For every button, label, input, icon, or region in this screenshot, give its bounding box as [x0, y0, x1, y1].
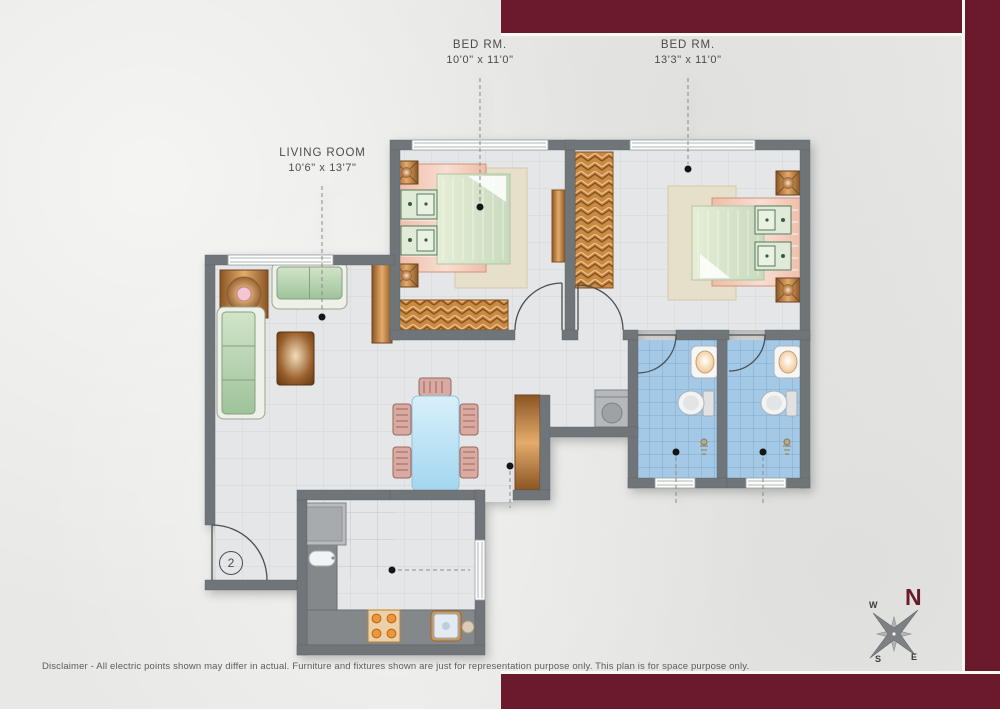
living-room-dimensions: 10'6" x 13'7": [250, 161, 395, 176]
floor-plan-page: BED RM. 10'0" x 11'0" BED RM. 13'3" x 11…: [0, 0, 1000, 709]
stove-icon: [368, 610, 400, 642]
refrigerator-icon: [302, 503, 346, 545]
window-icon: [655, 478, 695, 488]
sofa-icon: [272, 262, 347, 309]
compass-north-label: N: [905, 584, 922, 611]
electric-point-icon: [477, 204, 484, 211]
top-accent-band: [501, 0, 1000, 36]
bedroom1-label: BED RM. 10'0" x 11'0": [410, 38, 550, 68]
coffee-table-icon: [277, 332, 314, 385]
compass: N W S E: [852, 580, 948, 680]
electric-point-icon: [673, 449, 680, 456]
wardrobe-icon: [575, 152, 613, 288]
compass-east-label: E: [911, 652, 917, 662]
living-room-label: LIVING ROOM 10'6" x 13'7": [250, 146, 395, 176]
bedroom1-name: BED RM.: [410, 38, 550, 53]
bedroom1-dimensions: 10'0" x 11'0": [410, 53, 550, 68]
pillow-icon: [755, 206, 791, 234]
floor-plan-drawing: [0, 0, 1000, 709]
jar-icon: [462, 621, 474, 633]
bedroom2-name: BED RM.: [618, 38, 758, 53]
unit-number-badge: 2: [219, 551, 243, 575]
toilet-icon: [761, 391, 797, 416]
pillow-icon: [401, 226, 437, 255]
side-table-icon: [776, 171, 800, 195]
window-icon: [475, 540, 485, 600]
sofa-icon: [217, 307, 265, 419]
pillow-icon: [755, 242, 791, 270]
compass-west-label: W: [869, 600, 878, 610]
electric-point-icon: [389, 567, 396, 574]
sink-icon: [309, 551, 335, 566]
electric-point-icon: [319, 314, 326, 321]
dining-chair-icon: [419, 378, 451, 396]
sink-icon: [431, 611, 461, 641]
right-accent-band: [962, 0, 1000, 709]
bedroom2-label: BED RM. 13'3" x 11'0": [618, 38, 758, 68]
window-icon: [630, 140, 755, 150]
dining-chair-icon: [393, 404, 411, 435]
washbasin-icon: [774, 346, 802, 378]
washing-machine-icon: [595, 390, 629, 427]
washbasin-icon: [691, 346, 719, 378]
cabinet-icon: [552, 190, 565, 262]
electric-point-icon: [760, 449, 767, 456]
tv-cabinet-icon: [372, 262, 392, 343]
dining-chair-icon: [460, 404, 478, 435]
pillow-icon: [401, 190, 437, 219]
window-icon: [228, 255, 333, 265]
storage-cabinet-icon: [515, 395, 540, 490]
dining-chair-icon: [393, 447, 411, 478]
window-icon: [746, 478, 786, 488]
electric-point-icon: [507, 463, 514, 470]
living-room-name: LIVING ROOM: [250, 146, 395, 161]
toilet-icon: [678, 391, 714, 416]
compass-south-label: S: [875, 654, 881, 664]
side-table-icon: [776, 278, 800, 302]
wardrobe-icon: [398, 300, 508, 330]
disclaimer-text: Disclaimer - All electric points shown m…: [42, 661, 749, 672]
dining-table-icon: [412, 396, 459, 491]
dining-chair-icon: [460, 447, 478, 478]
bedroom2-dimensions: 13'3" x 11'0": [618, 53, 758, 68]
electric-point-icon: [685, 166, 692, 173]
